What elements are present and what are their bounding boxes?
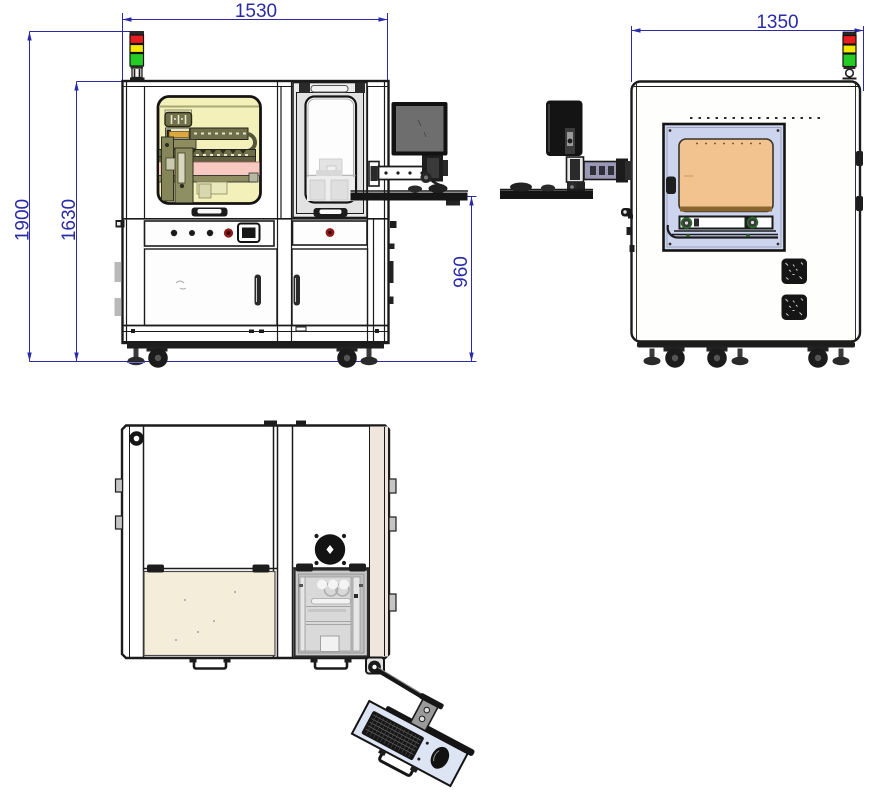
svg-text:1350: 1350 [756,12,798,33]
svg-text:960: 960 [451,256,472,288]
svg-text:1630: 1630 [59,199,80,241]
svg-text:1530: 1530 [235,1,277,22]
svg-text:1900: 1900 [13,199,34,241]
